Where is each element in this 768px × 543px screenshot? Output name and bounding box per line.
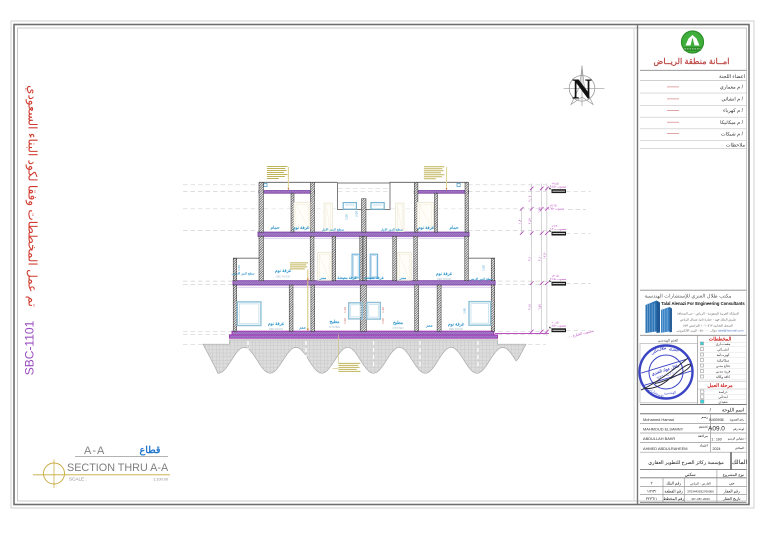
svg-text:+٠,٤٥: +٠,٤٥ [552, 321, 559, 325]
svg-text:+٧,٦٥: +٧,٦٥ [550, 203, 557, 207]
svg-text:تاريخ العقار: تاريخ العقار [722, 496, 741, 501]
svg-text:3703443532760000: 3703443532760000 [687, 489, 714, 493]
svg-text:٢,٠٥: ٢,٠٥ [527, 195, 531, 201]
svg-text:30 \ 08 \ 2023: 30 \ 08 \ 2023 [691, 497, 710, 501]
svg-text:2.00: 2.00 [355, 211, 359, 217]
svg-text:٣٢٣٦/١: ٣٢٣٦/١ [646, 497, 657, 501]
svg-text:سطح الدور الاول: سطح الدور الاول [322, 227, 345, 231]
svg-text:٣,١٠: ٣,١٠ [537, 255, 541, 261]
svg-text:جوال ٠٥٥٠٠٠٠ البريد الالكترون: جوال ٠٥٥٠٠٠٠ البريد الالكتروني talal@hot… [677, 328, 744, 332]
svg-text:BED ROOM: BED ROOM [437, 278, 451, 281]
svg-text:رسم: رسم [701, 415, 708, 419]
svg-text:KITCHEN: KITCHEN [393, 327, 404, 330]
svg-text:تم عمل المخططات وفقا لكود البن: تم عمل المخططات وفقا لكود البناء السعودي [26, 85, 40, 307]
svg-text:٦,٥٥: ٦,٥٥ [537, 304, 541, 310]
svg-text:1.00: 1.00 [381, 318, 385, 324]
svg-text:ميكانيكية: ميكانيكية [717, 359, 730, 363]
svg-text:N: N [572, 74, 592, 105]
svg-text:نوع المشروع: نوع المشروع [723, 472, 744, 477]
svg-text:كهربــائية: كهربــائية [717, 353, 730, 357]
svg-text:مكتب طلال العنزي للإستشارات ال: مكتب طلال العنزي للإستشارات الهندسية [644, 294, 731, 300]
svg-text:KITCHEN: KITCHEN [329, 326, 340, 329]
svg-text:رقم القطعة: رقم القطعة [664, 488, 683, 493]
svg-text:BED ROOM: BED ROOM [449, 328, 463, 331]
svg-text:م انشائي /: م انشائي / [721, 97, 743, 103]
svg-text:ملاحظات: ملاحظات [726, 142, 745, 148]
svg-text:٦,٢٥: ٦,٢٥ [537, 207, 541, 213]
svg-text:م ميكانيكا /: م ميكانيكا / [720, 120, 744, 126]
svg-text:الميلادي :: الميلادي : [735, 446, 746, 450]
svg-text:A-A: A-A [84, 445, 105, 457]
svg-text:تنفيذي: تنفيذي [718, 400, 727, 404]
svg-text:1.00: 1.00 [237, 265, 241, 271]
svg-text:2024: 2024 [713, 447, 721, 451]
svg-text:السجل التجاري ١٠١٠٥٦٧ الترخي: السجل التجاري ١٠١٠٥٦٧ الترخيص ٥٥٣ [683, 323, 733, 327]
svg-text:+٣,١٥: +٣,١٥ [552, 274, 559, 278]
svg-text:المالك: المالك [732, 459, 748, 466]
svg-text:مقياس الرسم /: مقياس الرسم / [728, 437, 746, 441]
svg-text:1.80: 1.80 [463, 308, 467, 314]
svg-text:AHMED ABDULRAHEEM: AHMED ABDULRAHEEM [643, 446, 688, 451]
svg-text:١٢,٣٠: ١٢,٣٠ [543, 251, 547, 259]
svg-text:تصميم: تصميم [699, 424, 708, 428]
svg-text:قرية مدني: قرية مدني [716, 370, 731, 374]
svg-text:كافة وكالة: كافة وكالة [716, 375, 731, 379]
svg-text:+٩,٤٥: +٩,٤٥ [552, 181, 559, 185]
svg-text:حي: حي [729, 481, 735, 485]
svg-text:م كهرباء /: م كهرباء / [723, 108, 744, 114]
svg-text:SBC-1101: SBC-1101 [23, 320, 37, 375]
svg-text:١,٨٠: ١,٨٠ [517, 218, 521, 224]
svg-text:العارض - الرياض: العارض - الرياض [690, 481, 711, 485]
svg-text:سكني: سكني [685, 472, 696, 477]
svg-text:SECTION THRU A-A: SECTION THRU A-A [67, 462, 169, 474]
svg-text:رقم المخطط: رقم المخطط [663, 496, 684, 501]
svg-text:اعتماد: اعتماد [700, 444, 709, 448]
svg-text:دراسة: دراسة [719, 390, 728, 394]
svg-text:قطاع: قطاع [140, 445, 161, 456]
svg-text:الختم الهندسي: الختم الهندسي [658, 338, 678, 342]
svg-text:١/٢/٣/: ١/٢/٣/ [647, 489, 657, 493]
svg-text:+٦,٣٠: +٦,٣٠ [552, 224, 559, 228]
svg-text:Talal Alenazi For Engineering: Talal Alenazi For Engineering Consultant… [661, 301, 745, 306]
svg-text:1.00: 1.00 [482, 265, 486, 271]
svg-text:SCALE :: SCALE : [69, 477, 87, 482]
svg-text:٣,١٠: ٣,١٠ [527, 255, 531, 261]
svg-text:BED ROOM: BED ROOM [276, 275, 290, 278]
svg-text:٢,٤٥: ٢,٤٥ [527, 218, 531, 224]
svg-text:امــانة منطقة الريــاض: امــانة منطقة الريــاض [653, 57, 729, 67]
svg-text:BED ROOM: BED ROOM [269, 328, 283, 331]
svg-text:اسم اللوحة: اسم اللوحة [722, 407, 744, 413]
svg-text:طريق الملك فهد - عمارة ثانية ش: طريق الملك فهد - عمارة ثانية شمال الرياض [680, 318, 737, 322]
svg-text:م شبكات /: م شبكات / [721, 131, 744, 137]
svg-text:1 : 100: 1 : 100 [711, 437, 721, 441]
svg-text:B400936: B400936 [709, 418, 723, 422]
svg-text:اعضاء اللجنة: اعضاء اللجنة [719, 74, 745, 80]
svg-text:A09.0: A09.0 [708, 426, 725, 433]
svg-text:٢: ٢ [650, 481, 652, 485]
svg-text:سطح الدور الاول: سطح الدور الاول [381, 227, 404, 231]
svg-text:رقم العضوية :: رقم العضوية : [729, 417, 745, 421]
svg-text:رقم البلك: رقم البلك [666, 480, 681, 485]
svg-text:المملكة العربية السعودية - الر: المملكة العربية السعودية - الرياض - حي ا… [677, 312, 739, 316]
svg-text:1.20: 1.20 [381, 307, 385, 313]
svg-text:ابتدائي: ابتدائي [718, 395, 727, 399]
svg-text:لوحة رقم :: لوحة رقم : [733, 427, 746, 431]
svg-text:دفاع مدني: دفاع مدني [716, 364, 731, 368]
svg-text:رقم العقار: رقم العقار [723, 488, 740, 493]
svg-text:MAHMOUD ELSAMNY: MAHMOUD ELSAMNY [643, 427, 684, 432]
svg-text:ABDULLAH BAKR: ABDULLAH BAKR [643, 436, 675, 441]
svg-text:1.00: 1.00 [343, 318, 347, 324]
svg-text:معمــــاري: معمــــاري [716, 342, 731, 346]
svg-text:1:100.00: 1:100.00 [153, 478, 168, 482]
svg-text:مراجعة: مراجعة [698, 434, 708, 438]
svg-text:1.20: 1.20 [343, 307, 347, 313]
svg-text:م معماري /: م معماري / [720, 85, 744, 91]
svg-text:انشــائي: انشــائي [717, 348, 729, 352]
svg-text:مرحلة العمل: مرحلة العمل [707, 383, 733, 389]
svg-text:1.00: 1.00 [345, 214, 349, 220]
svg-text:Mohamed Hamad: Mohamed Hamad [643, 417, 674, 422]
svg-text:مؤسسة ركائز الصرح للتطوير العق: مؤسسة ركائز الصرح للتطوير العقاري [648, 460, 724, 466]
svg-text:٣,١٥: ٣,١٥ [527, 304, 531, 310]
